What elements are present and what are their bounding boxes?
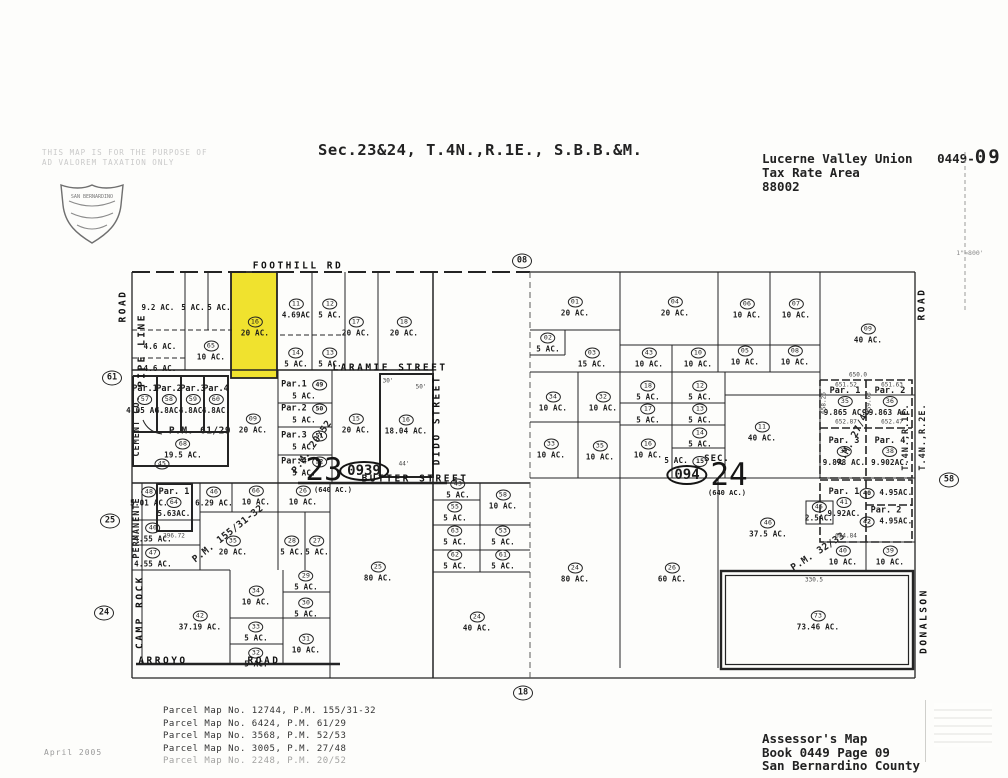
parcel-label: 3510 AC. <box>586 441 614 462</box>
dimension-text: 659.63 <box>866 392 873 414</box>
parcel-number: 39 <box>882 546 897 557</box>
parcel-number: 34 <box>545 392 560 403</box>
parcel-number: 58 <box>161 394 176 405</box>
parcel-number: 53 <box>495 526 510 537</box>
parcel-number: 35 <box>837 396 852 407</box>
parcel-acreage: 80 AC. <box>561 575 589 584</box>
parcel-number: 08 <box>787 346 802 357</box>
parcel-map-line: Parcel Map No. 6424, P.M. 61/29 <box>163 718 376 731</box>
parcel-acreage: 4.6 AC. <box>143 342 176 351</box>
parcel-number: 40 <box>860 488 875 499</box>
parcel-acreage: 5 AC. <box>688 440 712 449</box>
edge-marker: 18 <box>513 680 533 701</box>
parcel-number: 11 <box>288 299 303 310</box>
parcel-label: 3310 AC. <box>537 439 565 460</box>
parcel-acreage: 10 AC. <box>634 451 662 460</box>
parcel-acreage: 20 AC. <box>561 309 589 318</box>
parcel-acreage: 4.69AC <box>282 311 310 320</box>
parcel-label: Par. 1645.63AC. <box>157 488 190 518</box>
parcel-number: 40 <box>835 546 850 557</box>
road-label: ARROYO <box>138 656 187 667</box>
edge-marker: 58 <box>939 467 959 488</box>
parcel-label: 1610 AC. <box>634 439 662 460</box>
parcel-acreage: 5 AC. <box>318 311 342 320</box>
parcel-number: 09 <box>860 324 875 335</box>
road-label: DIDO STREET <box>432 375 443 465</box>
parcel-acreage: 5 AC. <box>443 514 467 523</box>
parcel-label: 0510 AC. <box>731 346 759 367</box>
parcel-label: 125 AC. <box>688 381 712 402</box>
parcel-label: 2480 AC. <box>561 563 589 584</box>
parcel-number: 33 <box>543 439 558 450</box>
parcel-number: 18 <box>513 686 533 701</box>
parcel-label: 4637.5 AC. <box>749 518 787 539</box>
parcel-label: 175 AC. <box>636 404 660 425</box>
parcel-label: 1140 AC. <box>748 422 776 443</box>
parcel-acreage: 20 AC. <box>390 329 418 338</box>
parcel-label: Par.1 495 AC. <box>281 380 327 401</box>
road-label: ROAD <box>118 290 129 323</box>
parcel-label: 2660 AC. <box>658 563 686 584</box>
road-label: DONALSON <box>919 588 930 654</box>
parcel-acreage: 10 AC. <box>635 360 663 369</box>
parcel-label: 466.29 AC. <box>195 487 233 508</box>
parcel-label: Par.2 505 AC. <box>281 404 327 425</box>
parcel-label: 1618.04 AC. <box>385 415 427 436</box>
parcel-label: 6819.5 AC. <box>164 439 202 460</box>
parcel-number: 16 <box>398 415 413 426</box>
parcel-number: 14 <box>288 348 303 359</box>
assessor-map-block: Assessor's Map Book 0449 Page 09 San Ber… <box>762 732 920 773</box>
assessor-map-page: THIS MAP IS FOR THE PURPOSE OF AD VALORE… <box>0 0 1008 778</box>
parcel-label: 135 AC. <box>688 404 712 425</box>
road-label: ROAD <box>248 656 281 667</box>
section-acreage-note: (640 AC.) <box>708 489 746 497</box>
parcel-label: 275 AC. <box>305 536 329 557</box>
parcel-map-line: Parcel Map No. 3005, P.M. 27/48 <box>163 743 376 756</box>
parcel-number: 65 <box>203 341 218 352</box>
parcel-number: 61 <box>495 550 510 561</box>
parcel-label: 295 AC. <box>294 571 318 592</box>
parcel-number: 10 <box>690 348 705 359</box>
map-date: April 2005 <box>44 748 102 757</box>
parcel-acreage: 10 AC. <box>782 311 810 320</box>
parcel-acreage: 5 AC. <box>443 562 467 571</box>
parcel-number: 50 <box>312 404 327 415</box>
parcel-acreage: 42 4.95AC. <box>860 517 913 528</box>
parcel-acreage: 5 AC. <box>636 393 660 402</box>
parcel-label: 7373.46 AC. <box>797 611 839 632</box>
parcel-label: 6510 AC. <box>197 341 225 362</box>
pm-reference: P.M. 61/29 <box>169 426 231 437</box>
parcel-label: 625 AC. <box>443 550 467 571</box>
parcel-par-label: Par. 2 <box>860 507 913 516</box>
parcel-label: 4310 AC. <box>635 348 663 369</box>
township-range-label: CEMENT CO. <box>132 395 142 456</box>
parcel-label: 4.6 AC. <box>143 341 176 351</box>
parcel-acreage: 5 AC. <box>294 583 318 592</box>
parcel-number: 12 <box>692 381 707 392</box>
dimension-text: 658.26 <box>821 392 828 414</box>
parcel-label: 2610 AC. <box>289 486 317 507</box>
parcel-number: 07 <box>788 299 803 310</box>
parcel-number: 63 <box>447 526 462 537</box>
parcel-acreage: 40 AC. <box>748 434 776 443</box>
parcel-label: 5 AC. <box>207 302 231 312</box>
parcel-acreage: 5 AC. <box>446 491 470 500</box>
parcel-acreage: 9.2 AC. <box>141 303 174 312</box>
parcel-acreage: 10 AC. <box>586 453 614 462</box>
parcel-acreage: 5 AC. <box>244 634 268 643</box>
parcel-label: 1520 AC. <box>342 414 370 435</box>
parcel-number: 31 <box>298 634 313 645</box>
parcel-number: 47 <box>145 548 160 559</box>
parcel-number: 68 <box>175 439 190 450</box>
parcel-number: 38 <box>882 446 897 457</box>
parcel-label: 9.2 AC. <box>141 302 174 312</box>
parcel-number: 04 <box>667 297 682 308</box>
parcel-number: 33 <box>248 622 263 633</box>
parcel-acreage: 40 AC. <box>463 624 491 633</box>
parcel-number: 60 <box>208 394 223 405</box>
parcel-number: 46 <box>206 487 221 498</box>
parcel-number: 08 <box>512 254 532 269</box>
parcel-number: 24 <box>94 606 114 621</box>
parcel-label: 1820 AC. <box>390 317 418 338</box>
parcel-label: 0420 AC. <box>661 297 689 318</box>
parcel-acreage: 9.92AC. <box>827 509 860 518</box>
parcel-label: 5 AC. <box>181 302 205 312</box>
parcel-label: 6610 AC. <box>242 486 270 507</box>
parcel-acreage: 10 AC. <box>781 358 809 367</box>
parcel-label: 535 AC. <box>491 526 515 547</box>
parcel-acreage: 5 AC. <box>294 610 318 619</box>
parcel-label: 335 AC. <box>244 622 268 643</box>
parcel-map-line: Parcel Map No. 3568, P.M. 52/53 <box>163 730 376 743</box>
road-label: CAMP ROCK <box>135 575 146 649</box>
parcel-label: 4.6 AC. <box>143 363 176 373</box>
parcel-acreage: 5 AC. <box>280 548 304 557</box>
parcel-acreage: 4.55 AC. <box>134 560 172 569</box>
parcel-label: 0120 AC. <box>561 297 589 318</box>
assessor-line3: San Bernardino County <box>762 759 920 773</box>
parcel-acreage: 15 AC. <box>578 360 606 369</box>
parcel-map-line: Parcel Map No. 2248, P.M. 20/52 <box>163 755 376 768</box>
parcel-map-references: Parcel Map No. 12744, P.M. 155/31-32Parc… <box>163 705 376 768</box>
township-range-label: T.4N.,R.2E. <box>918 403 928 470</box>
parcel-acreage: 5 AC. <box>536 345 560 354</box>
faint-stamp <box>934 703 992 747</box>
parcel-label: 1620 AC. <box>241 317 269 338</box>
parcel-acreage: 73.46 AC. <box>797 623 839 632</box>
parcel-label: 3410 AC. <box>539 392 567 413</box>
parcel-acreage: 4.6 AC. <box>143 364 176 373</box>
parcel-number: 26 <box>664 563 679 574</box>
parcel-label: 0610 AC. <box>733 299 761 320</box>
parcel-label: 0940 AC. <box>854 324 882 345</box>
parcel-number: 25 <box>100 514 120 529</box>
parcel-par-label: Par. 1 <box>157 488 190 497</box>
parcel-number: 58 <box>495 490 510 501</box>
parcel-number: 73 <box>810 611 825 622</box>
parcel-acreage: 10 AC. <box>242 598 270 607</box>
parcel-label: 0710 AC. <box>782 299 810 320</box>
parcel-acreage: 6.29 AC. <box>195 499 233 508</box>
parcel-number: 62 <box>447 550 462 561</box>
parcel-par-label: Par. 1 <box>827 488 860 497</box>
parcel-number: 34 <box>248 586 263 597</box>
parcel-acreage: 5 AC. <box>688 393 712 402</box>
parcel-label: 4237.19 AC. <box>179 611 221 632</box>
parcel-number: 12 <box>322 299 337 310</box>
parcel-acreage: 10 AC. <box>489 502 517 511</box>
dimension-text: 651.52 <box>835 382 857 389</box>
sec-label: SEC. <box>704 454 730 464</box>
assessor-line2: Book 0449 Page 09 <box>762 746 920 760</box>
parcel-label: 2440 AC. <box>463 612 491 633</box>
parcel-label: 185 AC. <box>636 381 660 402</box>
parcel-acreage: 5 AC. <box>443 538 467 547</box>
parcel-label: 3410 AC. <box>242 586 270 607</box>
parcel-label: 555 AC. <box>443 502 467 523</box>
parcel-acreage: 37.19 AC. <box>179 623 221 632</box>
parcel-number: 41 <box>836 497 851 508</box>
parcel-acreage: 5 AC. <box>181 303 205 312</box>
dimension-text: 650.0 <box>849 372 867 379</box>
parcel-number: 05 <box>737 346 752 357</box>
parcel-acreage: 5 AC. <box>305 548 329 557</box>
parcel-label: 025 AC. <box>536 333 560 354</box>
parcel-acreage: 20 AC. <box>342 329 370 338</box>
parcel-label: 0315 AC. <box>578 348 606 369</box>
township-range-label: T.4N.,R.1E. <box>901 403 911 470</box>
footer-divider-line <box>925 700 926 762</box>
book-oval-marker: 094 <box>666 465 707 485</box>
parcel-label: 3210 AC. <box>589 392 617 413</box>
parcel-acreage: 40 4.95AC. <box>860 488 913 499</box>
parcel-number: 45 <box>155 459 170 470</box>
parcel-acreage: 10 AC. <box>539 404 567 413</box>
parcel-acreage: 5 AC. <box>281 392 327 401</box>
parcel-acreage: 10 AC. <box>731 358 759 367</box>
parcel-acreage: 40 AC. <box>854 336 882 345</box>
parcel-number: 16 <box>640 439 655 450</box>
parcel-acreage: 20 AC. <box>342 426 370 435</box>
parcel-par-label: Par.1 49 <box>281 380 327 391</box>
dimension-text: 50' <box>416 384 427 391</box>
parcel-acreage: 37.5 AC. <box>749 530 787 539</box>
township-range-label: PERMANENTE <box>132 497 142 558</box>
parcel-acreage: 20 AC. <box>661 309 689 318</box>
parcel-acreage: 10 AC. <box>829 558 857 567</box>
parcel-label: 3910 AC. <box>876 546 904 567</box>
parcel-acreage: 20 AC. <box>239 426 267 435</box>
parcel-acreage: 60 AC. <box>658 575 686 584</box>
parcel-label: 114.69AC <box>282 299 310 320</box>
parcel-number: 28 <box>284 536 299 547</box>
section-number: 23 <box>305 452 342 488</box>
parcel-number: 48 <box>141 487 156 498</box>
parcel-number: 15 <box>348 414 363 425</box>
dimension-text: 652.87 <box>835 419 857 426</box>
parcel-label: 45 <box>155 459 170 470</box>
section-acreage-note: (640 AC.) <box>314 486 352 494</box>
parcel-acreage: 20 AC. <box>241 329 269 338</box>
dimension-text: 654.84 <box>835 533 857 540</box>
parcel-acreage: 5 AC. <box>636 416 660 425</box>
parcel-acreage: 10 AC. <box>733 311 761 320</box>
book-oval-marker: 0939 <box>339 461 389 481</box>
edge-marker: 25 <box>100 508 120 529</box>
parcel-label: Par. 242 4.95AC. <box>860 507 913 528</box>
parcel-number: 30 <box>298 598 313 609</box>
parcel-number: 59 <box>185 394 200 405</box>
parcel-number: 55 <box>447 502 462 513</box>
dimension-text: 296.72 <box>163 533 185 540</box>
parcel-acreage: 5 AC. <box>207 303 231 312</box>
parcel-label: 3110 AC. <box>292 634 320 655</box>
parcel-acreage: 10 AC. <box>684 360 712 369</box>
parcel-label: 285 AC. <box>280 536 304 557</box>
parcel-number: 18 <box>396 317 411 328</box>
parcel-number: 14 <box>692 428 707 439</box>
parcel-number: 11 <box>754 422 769 433</box>
parcel-number: 17 <box>348 317 363 328</box>
parcel-number: 17 <box>640 404 655 415</box>
parcel-par-label: Par.2 50 <box>281 404 327 415</box>
parcel-label: 40 4.95AC. <box>860 487 913 499</box>
parcel-acreage: 4.8AC. <box>202 406 230 415</box>
parcel-acreage: 10 AC. <box>292 646 320 655</box>
parcel-number: 43 <box>641 348 656 359</box>
parcel-label: 0920 AC. <box>239 414 267 435</box>
parcel-acreage: 10 AC. <box>537 451 565 460</box>
parcel-acreage: 18.04 AC. <box>385 427 427 436</box>
parcel-number: 25 <box>370 562 385 573</box>
parcel-number: 13 <box>322 348 337 359</box>
parcel-number: 24 <box>469 612 484 623</box>
parcel-label: Par. 1419.92AC. <box>827 488 860 518</box>
parcel-number: 18 <box>640 381 655 392</box>
parcel-acreage: 5.63AC. <box>157 509 190 518</box>
dimension-text: 30' <box>383 378 394 385</box>
parcel-number: 03 <box>584 348 599 359</box>
parcel-acreage: 5 AC. <box>491 562 515 571</box>
parcel-label: 5810 AC. <box>489 490 517 511</box>
edge-marker: 61 <box>102 365 122 386</box>
parcel-acreage: 20 AC. <box>219 548 247 557</box>
dimension-text: 652.47 <box>881 419 903 426</box>
road-label: FOOTHILL RD <box>253 261 343 272</box>
parcel-number: 35 <box>592 441 607 452</box>
parcel-number: 29 <box>298 571 313 582</box>
parcel-number: 40 <box>145 523 160 534</box>
dimension-text: 330.5 <box>805 577 823 584</box>
parcel-number: 02 <box>540 333 555 344</box>
parcel-number: 27 <box>309 536 324 547</box>
parcel-label: 635 AC. <box>443 526 467 547</box>
parcel-par-label: Par.4 <box>202 385 230 394</box>
edge-marker: 08 <box>512 248 532 269</box>
road-label: PIPE LINE <box>137 313 148 387</box>
dimension-text: 651.63 <box>881 382 903 389</box>
parcel-map-line: Parcel Map No. 12744, P.M. 155/31-32 <box>163 705 376 718</box>
parcel-label: 2580 AC. <box>364 562 392 583</box>
parcel-number: 24 <box>567 563 582 574</box>
parcel-number: 66 <box>248 486 263 497</box>
parcel-number: 42 <box>192 611 207 622</box>
parcel-acreage: 5 AC. <box>688 416 712 425</box>
parcel-label: 1720 AC. <box>342 317 370 338</box>
parcel-number: 01 <box>567 297 582 308</box>
parcel-number: 46 <box>760 518 775 529</box>
parcel-number: 32 <box>595 392 610 403</box>
road-label: ROAD <box>917 288 928 321</box>
parcel-acreage: 5 AC. <box>281 416 327 425</box>
parcel-acreage: 10 AC. <box>876 558 904 567</box>
parcel-acreage: 10 AC. <box>589 404 617 413</box>
parcel-label: 145 AC. <box>688 428 712 449</box>
parcel-label: 1010 AC. <box>684 348 712 369</box>
assessor-line1: Assessor's Map <box>762 732 920 746</box>
parcel-number: 16 <box>247 317 262 328</box>
parcel-number: 58 <box>939 473 959 488</box>
parcel-number: 49 <box>312 380 327 391</box>
parcel-number: 36 <box>882 396 897 407</box>
parcel-label: 125 AC. <box>318 299 342 320</box>
parcel-acreage: 10 AC. <box>289 498 317 507</box>
parcel-label: 305 AC. <box>294 598 318 619</box>
parcel-acreage: 10 AC. <box>197 353 225 362</box>
parcel-label: 615 AC. <box>491 550 515 571</box>
parcel-label: Par.4604.8AC. <box>202 385 230 415</box>
parcel-label: 0810 AC. <box>781 346 809 367</box>
parcel-acreage: 5 AC. <box>284 360 308 369</box>
parcel-acreage: 5 AC. <box>491 538 515 547</box>
parcel-acreage: 80 AC. <box>364 574 392 583</box>
parcel-number: 64 <box>166 497 181 508</box>
parcel-number: 42 <box>860 517 875 528</box>
parcel-number: 09 <box>245 414 260 425</box>
road-label: LARAMIE STREET <box>332 363 447 374</box>
parcel-acreage: 19.5 AC. <box>164 451 202 460</box>
dimension-text: 44' <box>399 461 410 468</box>
parcel-number: 13 <box>692 404 707 415</box>
edge-marker: 24 <box>94 600 114 621</box>
parcel-number: 06 <box>739 299 754 310</box>
parcel-label: 145 AC. <box>284 348 308 369</box>
parcel-number: 45 <box>811 502 826 513</box>
parcel-number: 61 <box>102 371 122 386</box>
